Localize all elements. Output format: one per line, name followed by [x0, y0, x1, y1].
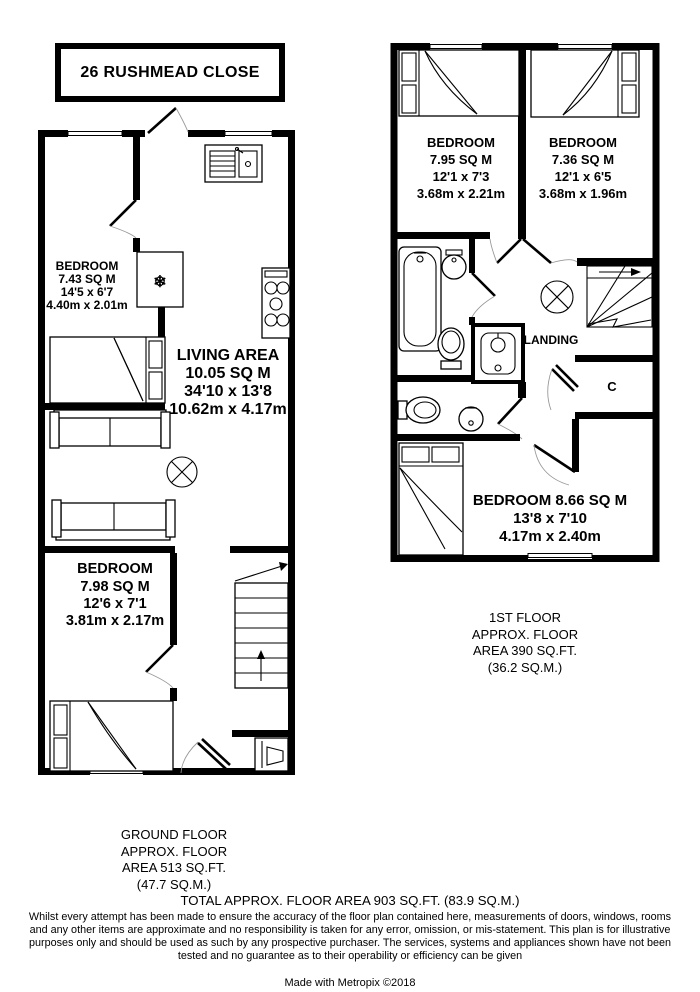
bathtub	[399, 247, 441, 351]
room-dimensions-imperial: 12'1 x 6'5	[555, 169, 612, 184]
toilet	[398, 397, 440, 423]
shower-cubicle	[473, 325, 523, 382]
room-area: 7.36 SQ M	[552, 152, 614, 167]
basin	[442, 250, 466, 279]
sofa	[52, 500, 175, 540]
window	[430, 45, 482, 49]
caption-line: AREA 390 SQ.FT.	[423, 643, 627, 660]
bed	[531, 50, 639, 117]
room-dimensions-imperial: 12'1 x 7'3	[433, 169, 490, 184]
first-floor-plan: BEDROOM 7.95 SQ M 12'1 x 7'3 3.68m x 2.2…	[385, 35, 670, 570]
window	[558, 45, 612, 49]
room-label: BEDROOM	[549, 135, 617, 150]
room-dimensions-imperial: 34'10 x 13'8	[184, 383, 272, 400]
room-dimensions-metric: 3.68m x 1.96m	[539, 186, 627, 201]
room-area: 7.98 SQ M	[80, 579, 149, 595]
room-area: 7.95 SQ M	[430, 152, 492, 167]
metropix-credit: Made with Metropix ©2018	[0, 977, 700, 989]
caption-line: AREA 513 SQ.FT.	[72, 860, 276, 877]
room-dimensions-imperial: 14'5 x 6'7	[61, 285, 114, 299]
caption-line: APPROX. FLOOR	[423, 627, 627, 644]
room-dimensions-imperial: 12'6 x 7'1	[83, 596, 146, 612]
caption-line: APPROX. FLOOR	[72, 844, 276, 861]
cupboard-label: C	[607, 379, 617, 394]
entry-door	[148, 108, 176, 133]
fridge: ❄	[137, 252, 183, 307]
bed	[399, 443, 463, 555]
toilet	[255, 738, 288, 771]
bed	[399, 50, 519, 116]
room-label: LIVING AREA	[177, 347, 280, 364]
caption-line: GROUND FLOOR	[72, 827, 276, 844]
room-dimensions-metric: 4.40m x 2.01m	[46, 298, 127, 312]
room-dimensions-imperial: 13'8 x 7'10	[513, 510, 587, 527]
address-title: 26 RUSHMEAD CLOSE	[80, 64, 259, 82]
caption-line: 1ST FLOOR	[423, 610, 627, 627]
room-label: LANDING	[524, 333, 579, 347]
room-label: BEDROOM	[77, 561, 153, 577]
room-dimensions-metric: 3.68m x 2.21m	[417, 186, 505, 201]
room-label: BEDROOM 8.66 SQ M	[473, 492, 627, 509]
ground-floor-caption: GROUND FLOOR APPROX. FLOOR AREA 513 SQ.F…	[72, 827, 276, 893]
toilet	[438, 328, 464, 369]
room-area: 10.05 SQ M	[185, 365, 270, 382]
basin	[459, 407, 483, 431]
disclaimer-text: Whilst every attempt has been made to en…	[22, 911, 678, 963]
window	[528, 554, 592, 558]
room-dimensions-metric: 10.62m x 4.17m	[169, 401, 286, 418]
window	[68, 132, 122, 136]
address-title-box: 26 RUSHMEAD CLOSE	[55, 43, 285, 102]
sofa	[50, 410, 170, 448]
first-floor-caption: 1ST FLOOR APPROX. FLOOR AREA 390 SQ.FT. …	[423, 610, 627, 676]
window	[225, 132, 272, 136]
room-dimensions-metric: 3.81m x 2.17m	[66, 613, 164, 629]
room-label: BEDROOM	[56, 259, 119, 273]
fridge-snowflake-icon: ❄	[153, 274, 166, 291]
kitchen-sink	[205, 145, 262, 182]
room-area: 7.43 SQ M	[58, 272, 115, 286]
room-dimensions-metric: 4.17m x 2.40m	[499, 528, 601, 545]
stove	[262, 268, 290, 338]
total-floor-area: TOTAL APPROX. FLOOR AREA 903 SQ.FT. (83.…	[0, 893, 700, 908]
floorplan-page: 26 RUSHMEAD CLOSE	[0, 0, 700, 992]
caption-line: (36.2 SQ.M.)	[423, 660, 627, 677]
bed	[50, 337, 165, 403]
room-label: BEDROOM	[427, 135, 495, 150]
ground-floor-plan: ❄	[30, 105, 300, 785]
bed	[50, 701, 173, 771]
caption-line: (47.7 SQ.M.)	[72, 877, 276, 894]
